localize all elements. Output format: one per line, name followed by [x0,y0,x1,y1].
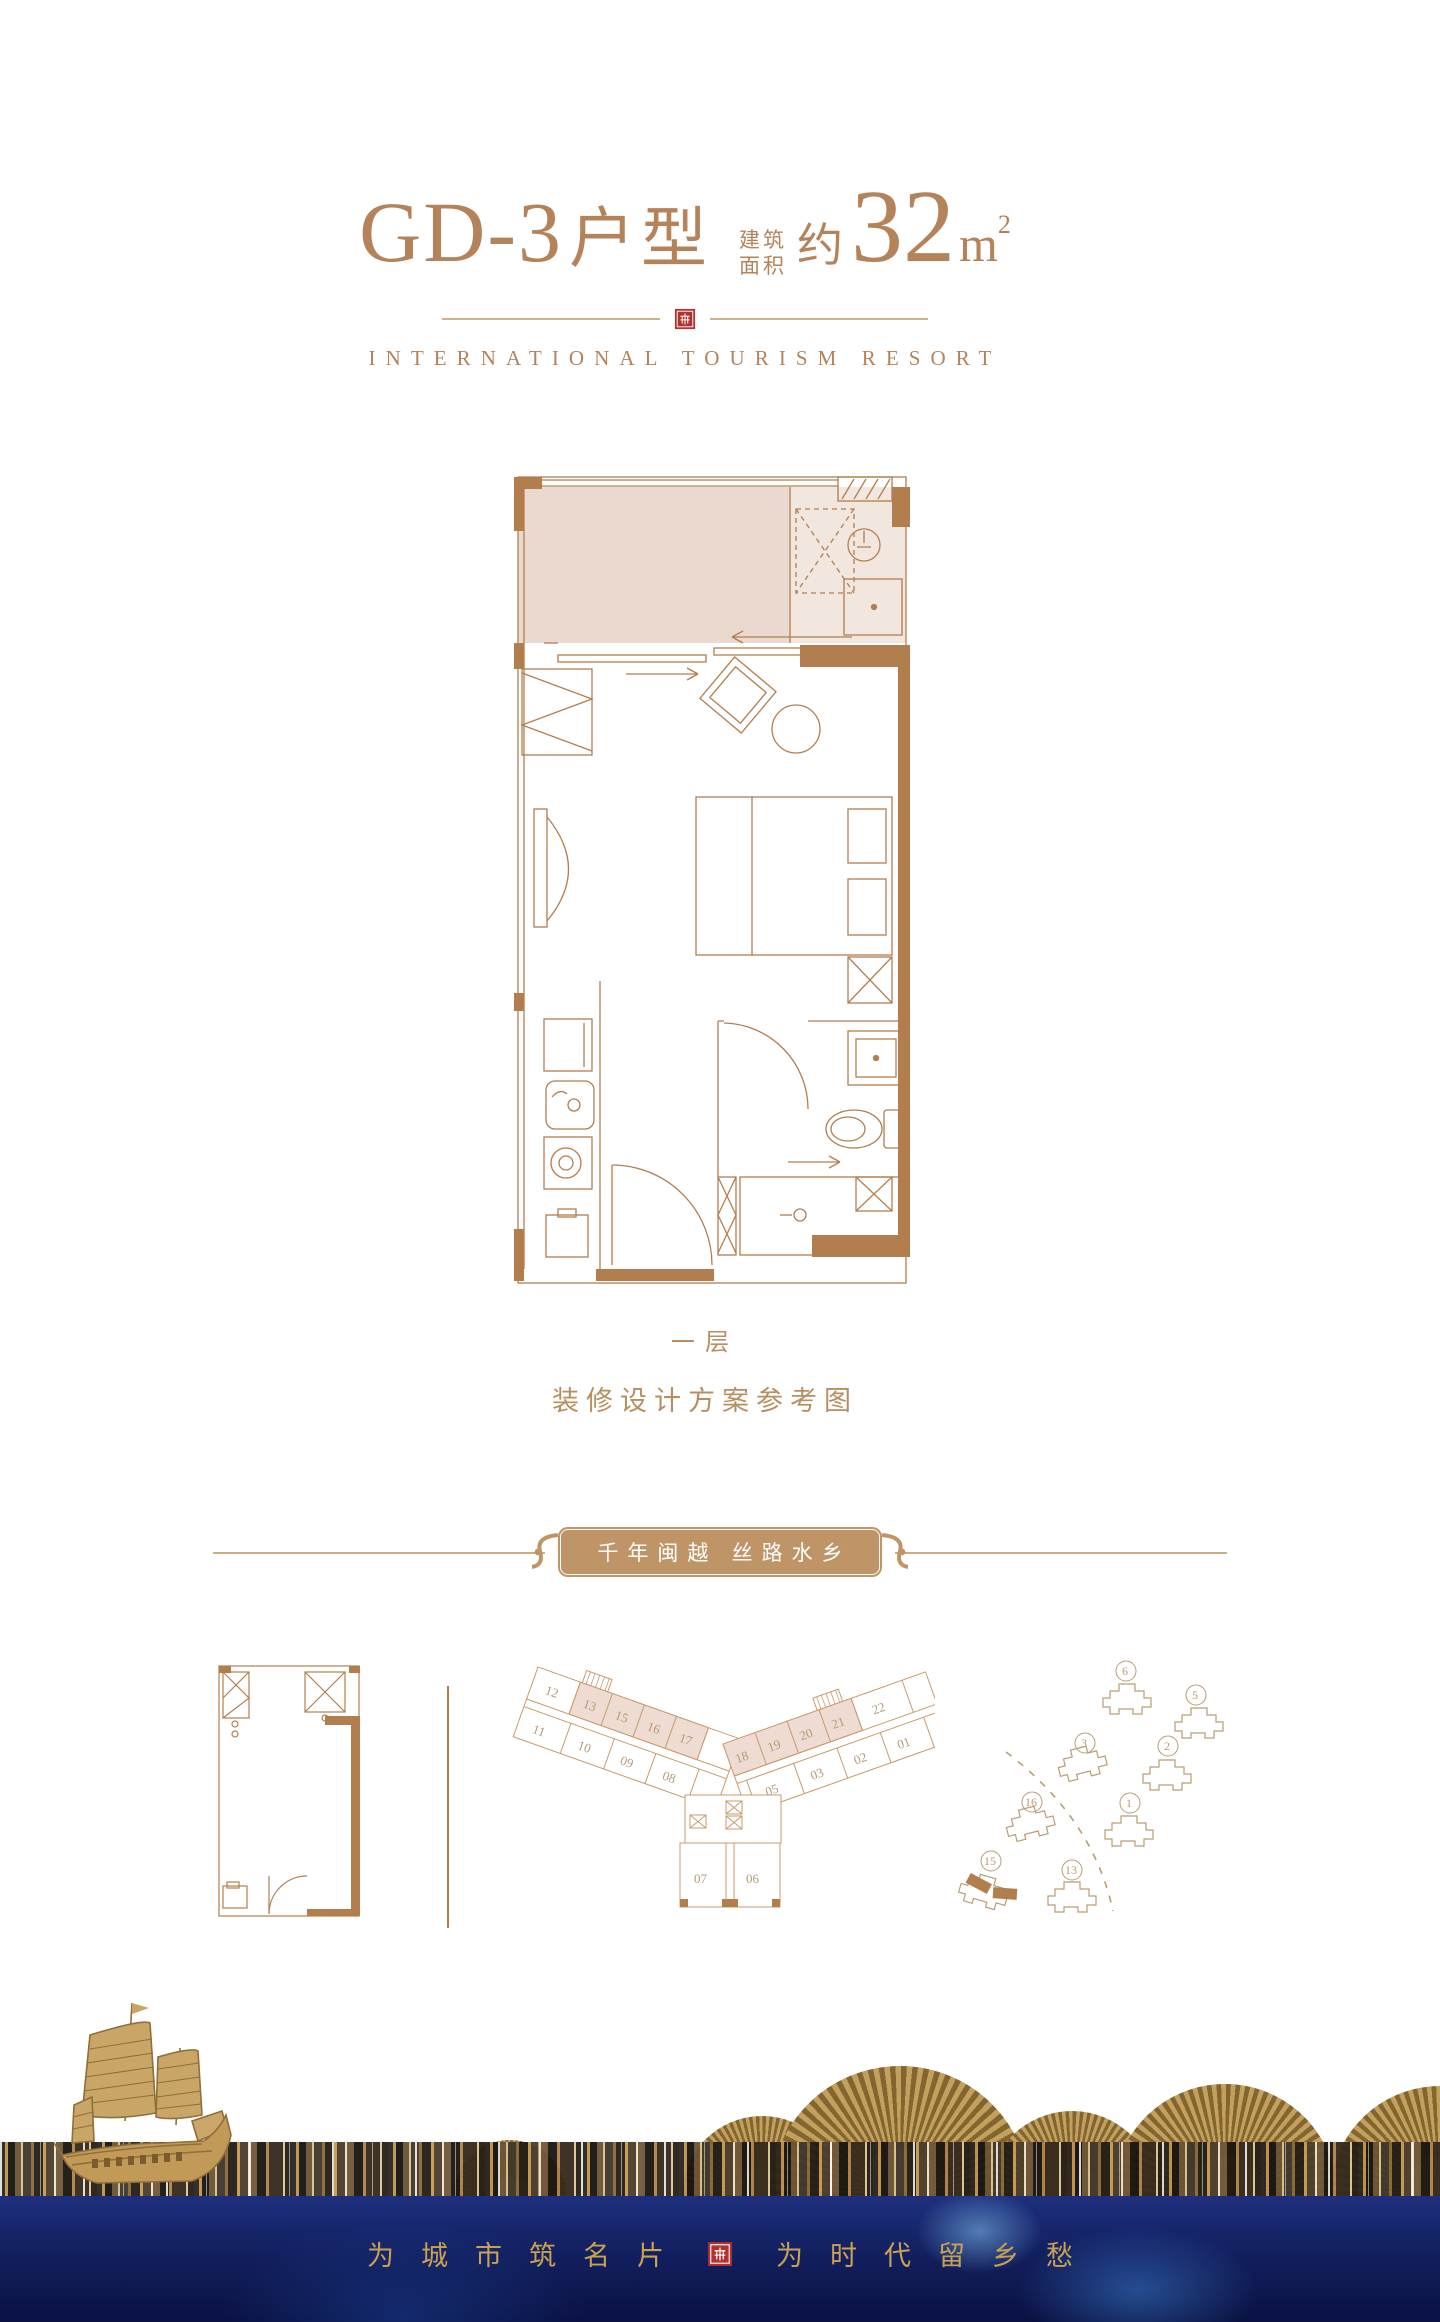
building-footprint [1175,1708,1223,1738]
area-label-top: 建筑 [739,227,787,253]
area-unit: m2 [959,210,1011,273]
bath-door [724,1023,808,1109]
bed [696,797,892,955]
svg-text:6: 6 [1122,1664,1128,1678]
balcony-shading [518,487,790,643]
svg-text:1: 1 [1126,1796,1132,1810]
vertical-divider [447,1686,449,1928]
core-stem: 07 06 [680,1795,781,1907]
area-label: 建筑 面积 [739,227,787,280]
table [700,657,776,733]
desk [534,809,547,927]
area-value: 32 [851,180,955,274]
area-approx: 约 [797,209,843,275]
floor-caption: 一层 [460,1322,950,1357]
kitchen [544,981,600,1269]
red-seal-icon [707,2241,733,2267]
svg-text:3: 3 [1081,1736,1087,1750]
pillow [848,879,886,935]
unit-code: GD-3 [359,182,563,282]
furniture [522,657,892,1003]
note-caption: 装修设计方案参考图 [460,1379,950,1418]
right-wing: 18 19 20 21 22 05 03 02 01 [719,1660,935,1814]
unit-floor-plan [500,473,910,1288]
unit-number: 06 [746,1871,760,1886]
toilet-icon [826,1110,882,1148]
water-band: 为城市筑名片 为时代留乡愁 [0,2196,1440,2322]
building-label: 2 [1158,1736,1178,1756]
header: GD-3 户型 建筑 面积 约 32 m2 INTERNATIONAL TOUR… [0,180,1405,371]
svg-text:15: 15 [984,1854,996,1868]
page-title: GD-3 户型 建筑 面积 约 32 m2 [0,180,1405,294]
cabinet [223,1886,247,1908]
plan-captions: 一层 装修设计方案参考图 [460,1322,950,1418]
pillow [848,809,886,863]
building-footprint [1143,1760,1191,1790]
building-label: 6 [1116,1661,1136,1681]
building-label: 13 [1062,1860,1082,1880]
key-plan [213,1658,371,1930]
left-wing: 12 13 15 16 17 11 10 09 08 [513,1655,745,1809]
shower-screen [718,1177,736,1255]
divider-line-right [710,318,928,320]
bathroom [718,1021,910,1255]
cabinet [546,1215,588,1257]
banner-scroll-left-icon [530,1527,560,1577]
building-footprint [1103,1684,1151,1714]
building-label: 1 [1120,1793,1140,1813]
svg-text:13: 13 [1065,1863,1077,1877]
subtitle: INTERNATIONAL TOURISM RESORT [0,346,1405,371]
svg-text:2: 2 [1164,1739,1170,1753]
slogan-left: 为城市筑名片 [340,2234,691,2273]
section-banner: 千年闽越 丝路水乡 [558,1527,882,1577]
svg-text:5: 5 [1192,1688,1198,1702]
unit-number: 07 [694,1871,708,1886]
banner-text: 千年闽越 丝路水乡 [588,1537,851,1567]
unit-type-label: 户型 [569,185,713,281]
closet [223,1672,249,1718]
entry-door [269,1876,307,1914]
area-unit-sup: 2 [998,210,1011,239]
banner-line-right [895,1552,1227,1554]
area-unit-m: m [959,216,998,272]
slogan-right: 为时代留乡愁 [749,2234,1100,2273]
building-footprint [1105,1816,1153,1846]
sink [546,1081,594,1129]
brochure-page: GD-3 户型 建筑 面积 约 32 m2 INTERNATIONAL TOUR… [0,0,1440,2322]
building-footprint [1048,1882,1096,1912]
red-seal-icon [674,308,696,330]
junk-ship-icon [52,1993,242,2198]
area-label-bottom: 面积 [739,253,787,279]
building-label: 5 [1186,1685,1206,1705]
entry-door [612,1165,712,1265]
building-floor-plate: 12 13 15 16 17 11 10 09 08 18 [480,1635,935,2010]
stool [772,705,820,753]
banner-line-left [213,1552,545,1554]
banner-scroll-right-icon [880,1527,910,1577]
fridge [544,1019,592,1071]
site-plan: 6 5 3 2 16 1 15 13 [943,1638,1308,2003]
jib-sail [72,2097,94,2143]
bath-top-shading [790,487,906,643]
svg-text:16: 16 [1025,1795,1037,1809]
divider-line-left [442,318,660,320]
building-label: 15 [981,1851,1001,1871]
footer-slogan: 为城市筑名片 为时代留乡愁 [0,2234,1440,2273]
title-divider [0,308,1405,330]
